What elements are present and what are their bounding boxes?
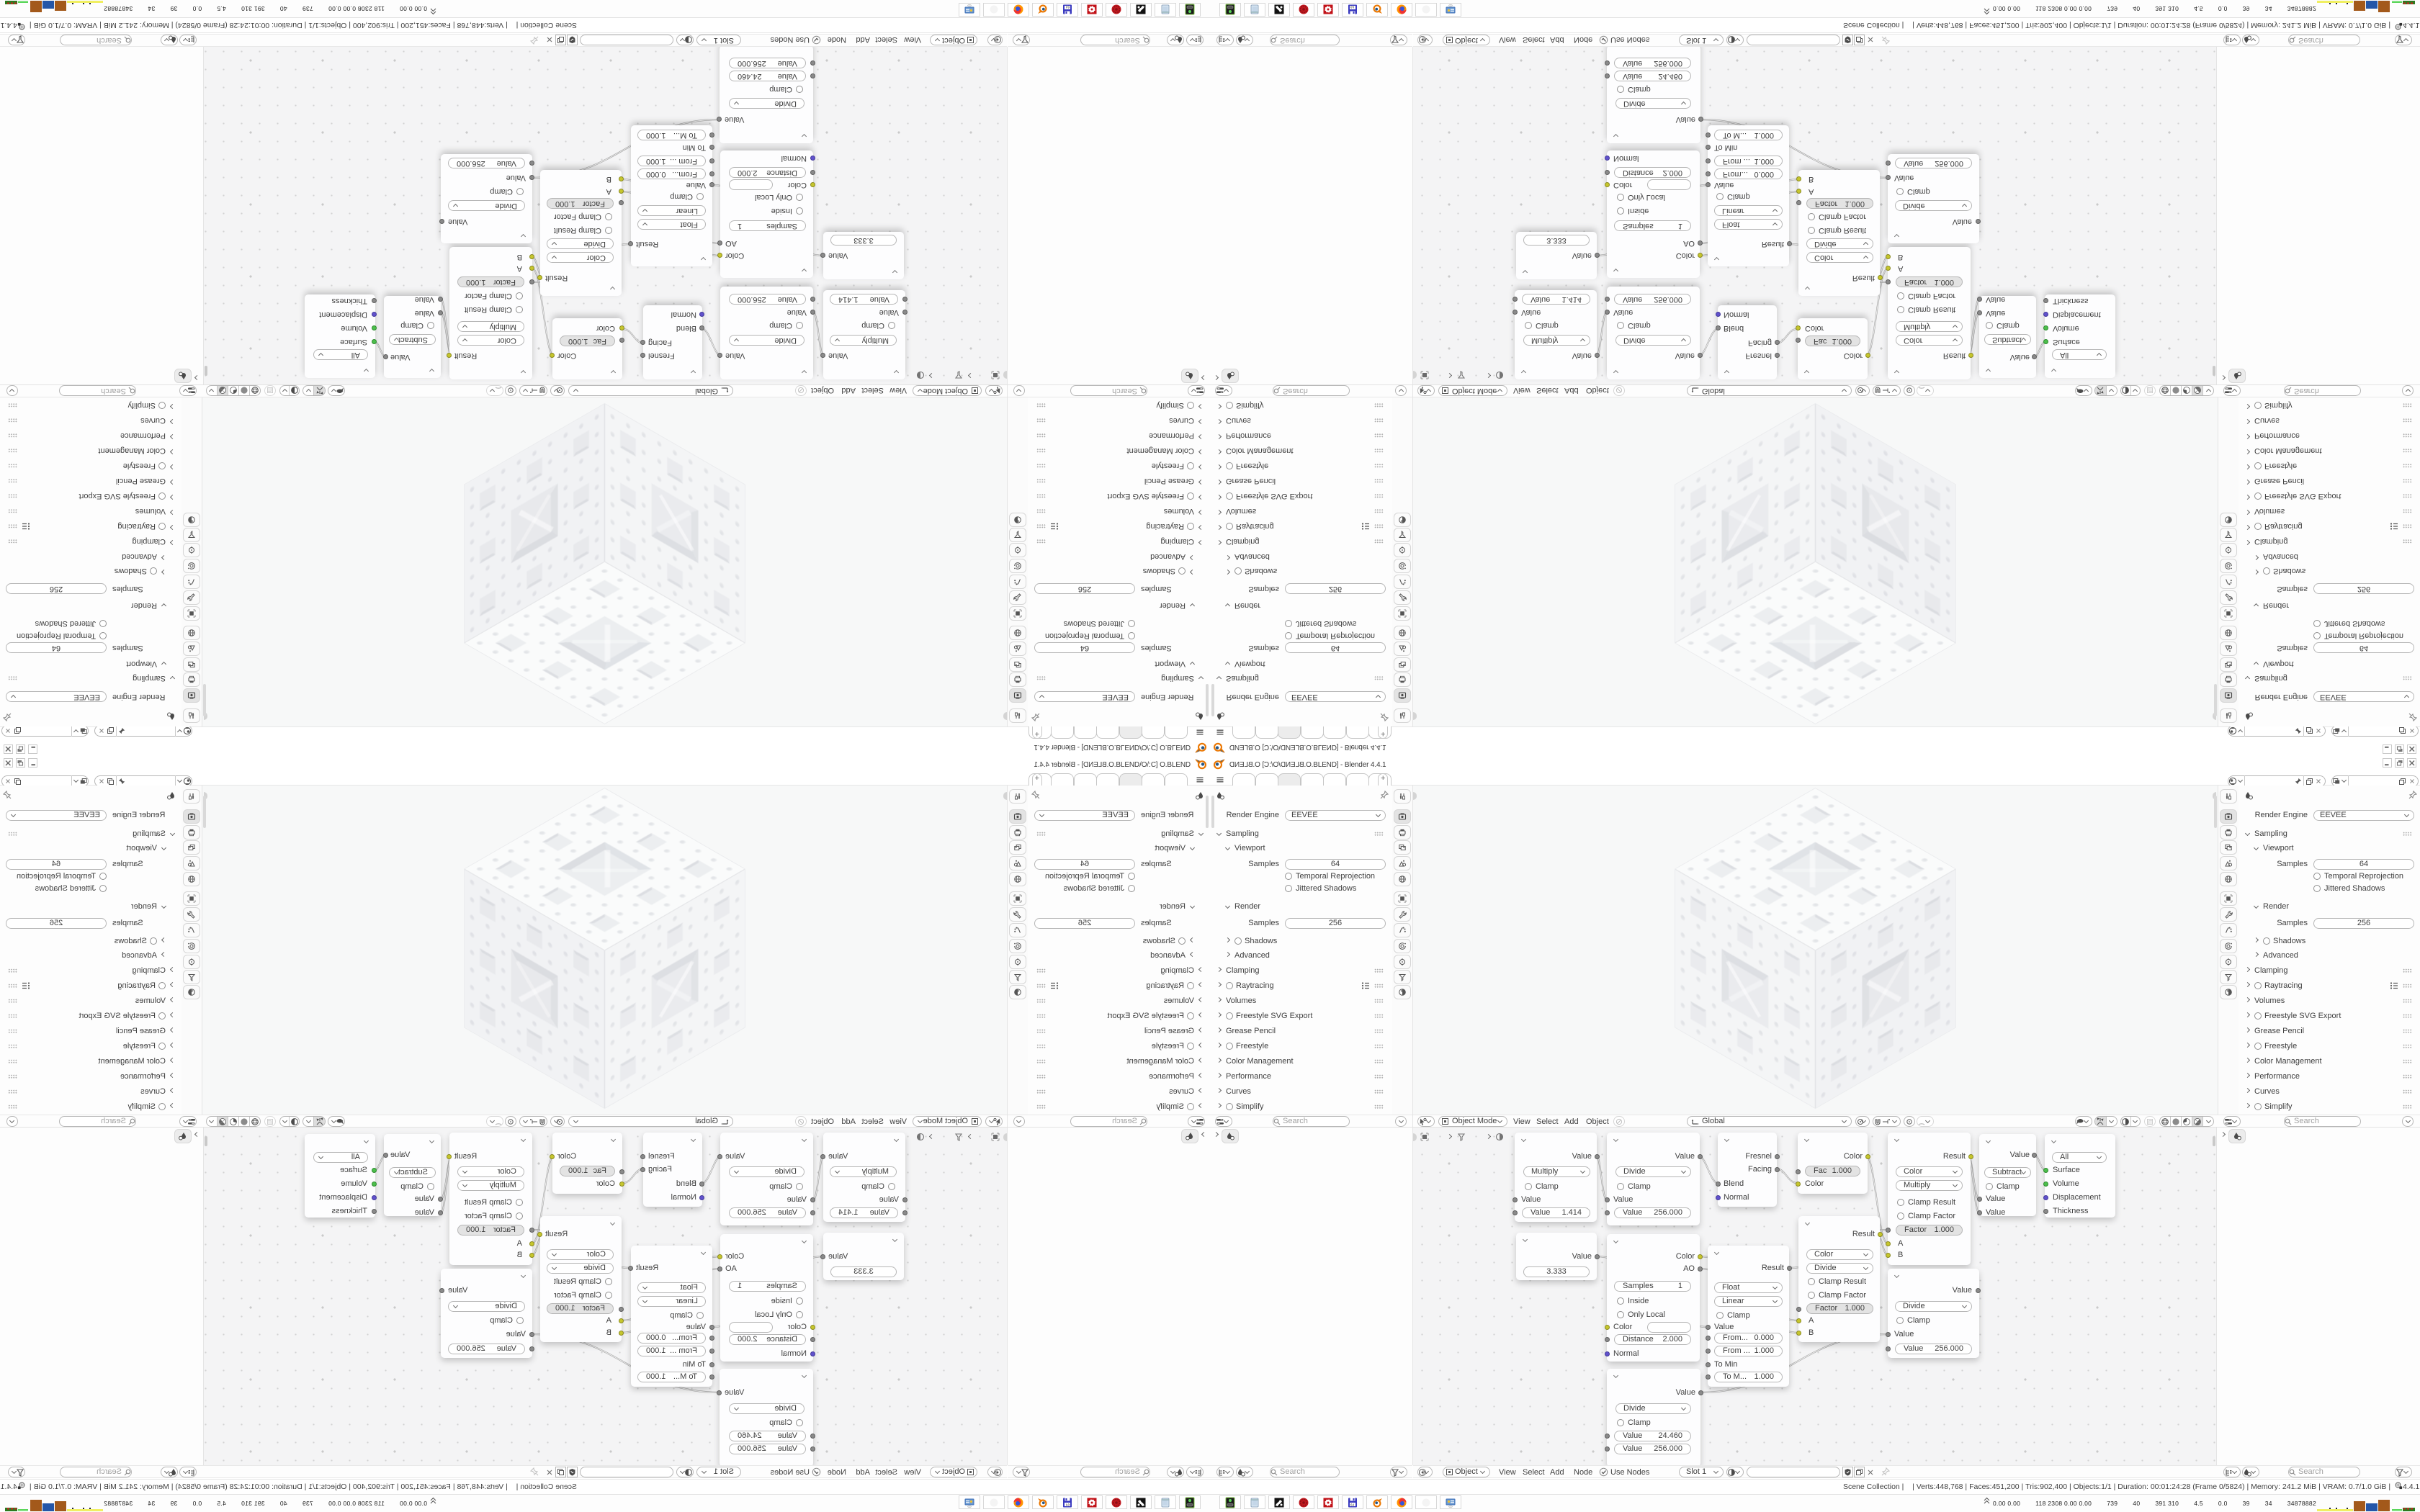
svg-text:64: 64	[1065, 1503, 1070, 1506]
svg-text:64: 64	[1350, 6, 1355, 9]
svg-text:64: 64	[1350, 1503, 1355, 1506]
svg-text:64: 64	[1065, 6, 1070, 9]
